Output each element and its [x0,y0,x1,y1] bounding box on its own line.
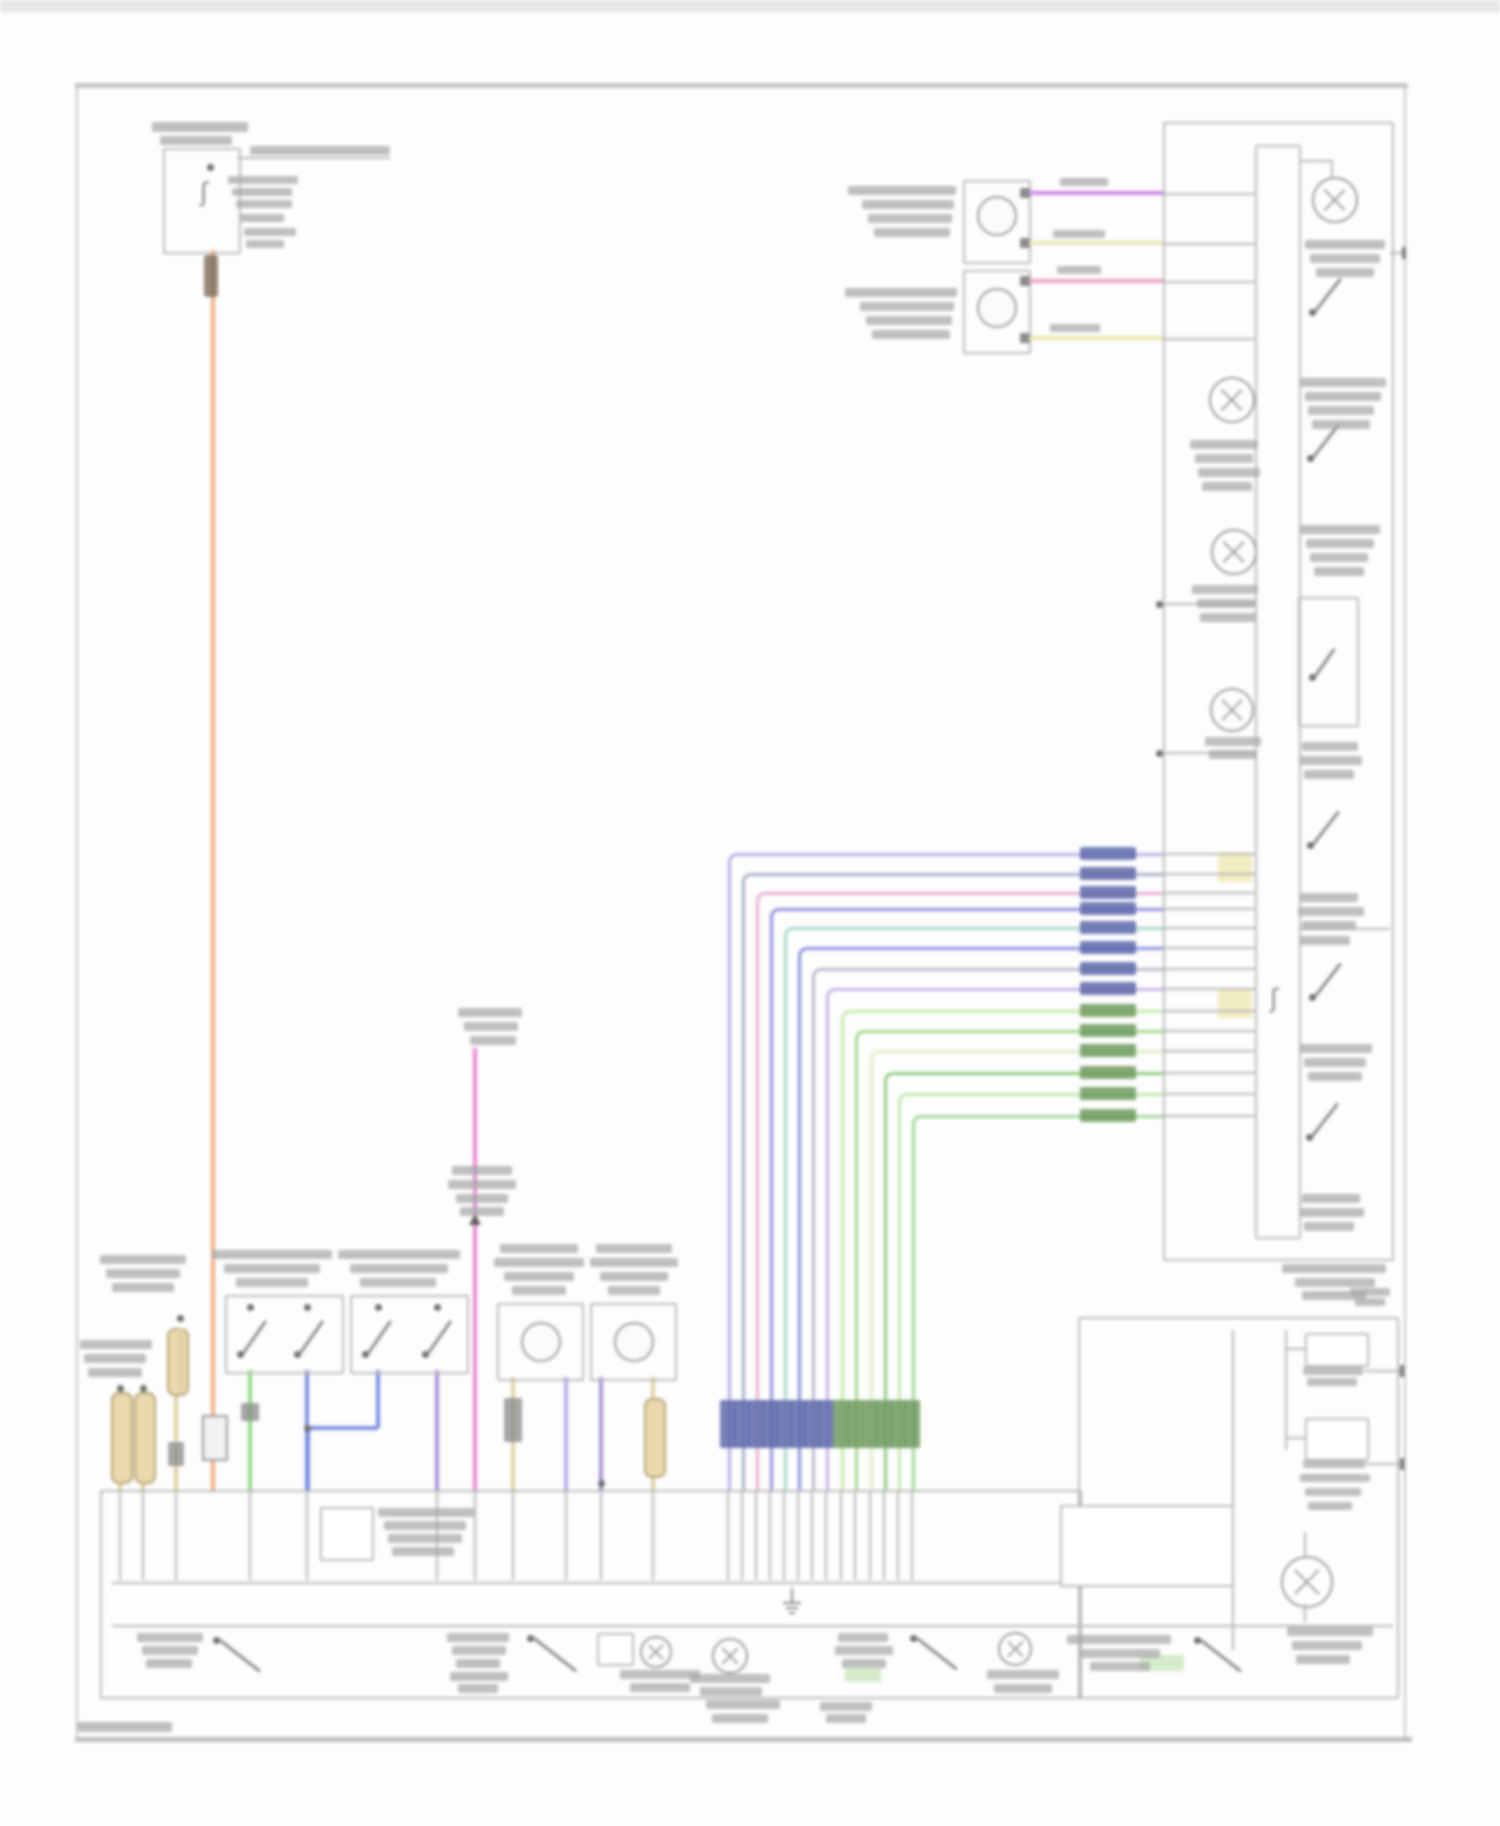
illegible-label [1292,1641,1362,1650]
illegible-label [1307,1378,1357,1386]
illegible-label [1300,936,1350,945]
drop-wire [599,1377,603,1490]
blue-wire [376,1370,380,1428]
illegible-label [1090,1662,1150,1671]
illegible-label [1304,1058,1366,1067]
drop-wire [564,1377,568,1490]
illegible-label [78,1722,172,1732]
offpage-tick [1400,1458,1404,1470]
illegible-label [500,1244,578,1253]
bundle-wire-label [818,1400,834,1448]
bundle-wire-label [847,1400,863,1448]
illegible-label [1303,1460,1365,1468]
ground-symbol-icon [789,1612,795,1614]
offpage-tick [1400,1365,1404,1377]
bus-stub-line [512,1490,514,1580]
illegible-label [1355,1298,1385,1306]
wire-label-block [241,1403,259,1421]
drop-wire [473,1048,477,1490]
diagram-canvas: ʃʃ [0,0,1500,1826]
terminal-dot [140,1385,147,1392]
indicator-lamp-icon [1209,377,1255,423]
tap-dot [1156,601,1163,608]
illegible-label [1308,1502,1352,1510]
terminal-dot [598,1480,605,1487]
internal-line [1163,1030,1255,1032]
internal-line [1163,1115,1255,1117]
illegible-label [448,1180,516,1189]
illegible-label [1308,406,1374,415]
pale-wire-label [1218,852,1252,882]
indicator-lamp-icon [1211,529,1257,575]
illegible-label [456,1659,500,1668]
motor-icon [614,1322,654,1362]
internal-line [1163,281,1255,283]
illegible-label [872,330,950,339]
illegible-label [1303,1367,1363,1375]
illegible-label [232,188,292,196]
illegible-label [504,1272,574,1281]
illegible-label [1302,1194,1360,1203]
illegible-label [1296,1655,1350,1664]
illegible-label [1314,567,1364,576]
frame-bottom-border [75,1737,1412,1742]
illegible-label [1350,1288,1390,1296]
motor-icon [977,288,1017,328]
pin-dot [247,1304,254,1311]
blue-link-wire [307,1426,378,1430]
wire-coil-icon: ʃ [1270,986,1279,1012]
illegible-label [1197,599,1255,608]
illegible-label [1300,1474,1370,1482]
bundle-wire-label [1080,1066,1136,1079]
main-module-box [100,1490,1082,1699]
illegible-label [712,1714,768,1723]
internal-line [1163,947,1255,949]
pale-wire-label [1218,990,1252,1018]
illegible-label [100,1255,186,1264]
wire-connector-block [202,1415,228,1461]
illegible-label [1053,230,1105,238]
frame-right-border [1404,83,1406,1742]
bus-stub-line [306,1490,308,1580]
indicator-lamp-icon [640,1636,672,1668]
terminal-dot [117,1385,124,1392]
bus-stub-line [600,1490,602,1580]
fuse-capsule-icon [167,1328,189,1396]
bundle-wire-label [1080,867,1136,880]
illegible-label [250,146,390,155]
motor-wire [1029,241,1163,245]
illegible-label [1195,454,1253,463]
illegible-label [460,1207,504,1216]
lamp-lead-line [1304,1604,1306,1622]
illegible-label [820,1702,872,1711]
illegible-label [1304,770,1354,779]
khaki-wire [179,1328,183,1390]
illegible-label [845,288,957,297]
illegible-label [1316,268,1374,277]
illegible-label [1300,378,1386,387]
illegible-label [1202,482,1252,491]
illegible-label [1198,468,1260,477]
bundle-wire-label [1080,1024,1136,1037]
illegible-label [706,1700,780,1709]
internal-line [1163,873,1255,875]
illegible-label [1192,585,1258,594]
illegible-label [456,1194,508,1203]
illegible-label [826,1714,866,1723]
illegible-label [142,1646,198,1655]
lamp-lead-line [1304,1532,1306,1556]
bus-stub-line [652,1490,654,1580]
illegible-label [392,1547,454,1556]
internal-line [1163,1050,1255,1052]
illegible-label [1200,613,1256,622]
illegible-label [1302,742,1358,751]
illegible-label [388,1534,462,1543]
illegible-label [228,176,298,184]
illegible-label [146,1659,192,1668]
illegible-label [224,1264,320,1273]
illegible-label [137,1633,203,1642]
illegible-label [512,1286,566,1295]
illegible-label [1190,440,1258,449]
indicator-lamp-icon [1210,688,1254,732]
orange-feed-wire [211,250,215,1490]
illegible-label [88,1368,142,1377]
illegible-label [1300,1044,1372,1053]
illegible-label [246,240,284,248]
blue-wire [305,1370,309,1428]
bus-stub-line [474,1490,476,1580]
illegible-label [350,1264,448,1273]
motor-icon [977,196,1017,236]
illegible-label [630,1683,690,1692]
illegible-label [458,1008,522,1017]
page-top-strip [0,0,1500,12]
indicator-lamp-icon [1312,177,1358,223]
internal-line [1163,988,1255,990]
bus-stub-line [565,1490,567,1580]
illegible-label [1306,539,1374,548]
motor-wire [1029,336,1163,340]
bundle-wire-label [1080,1044,1136,1057]
illegible-label [452,1166,512,1175]
bundle-wire-label [1080,1087,1136,1100]
ground-symbol-icon [791,1588,793,1602]
illegible-label [338,1250,460,1259]
illegible-label [1205,737,1261,746]
illegible-label [470,1036,516,1045]
motor-wire [1029,279,1163,283]
motor-icon [521,1322,561,1362]
illegible-label [1287,1627,1373,1636]
illegible-label [152,122,248,132]
illegible-label [994,1684,1052,1693]
offpage-stub-line [1365,1370,1402,1372]
switch-box [225,1295,344,1374]
illegible-label [987,1670,1059,1679]
lamp-feed-line [1299,160,1333,162]
illegible-label [244,228,296,236]
illegible-label [236,1278,308,1287]
illegible-label [1295,1278,1375,1287]
fuse-element-icon: ʃ [200,180,209,206]
fuse-terminal-dot [207,164,214,171]
illegible-label [596,1244,672,1253]
bundle-wire-label [904,1400,920,1448]
bundle-wire-label [1080,941,1136,954]
illegible-label [1300,525,1380,534]
internal-line [1285,1348,1305,1350]
illegible-label [868,214,952,223]
internal-line [1163,193,1255,195]
offpage-tick [1402,247,1406,259]
switch-box [350,1295,469,1374]
wire-label-block [168,1442,184,1466]
illegible-label [447,1633,509,1642]
component-sub-box [1305,1418,1369,1461]
illegible-label [842,1659,886,1668]
bus-stub-line [142,1490,144,1580]
module-sub-box [320,1507,374,1561]
illegible-label [608,1286,660,1295]
illegible-label [1300,756,1362,765]
bundle-wire-label [1080,962,1136,975]
illegible-label [838,1633,888,1642]
frame-left-border [76,83,78,1742]
illegible-label [1282,1264,1386,1273]
illegible-label [450,1672,508,1681]
illegible-label [1305,240,1385,249]
illegible-label [700,1687,762,1696]
illegible-label [1298,907,1364,916]
blue-wire [306,1428,310,1490]
illegible-label [80,1340,152,1349]
illegible-label [464,1022,518,1031]
illegible-label [1209,750,1257,759]
illegible-label [378,1508,474,1517]
illegible-label [384,1521,466,1530]
illegible-label [236,200,292,208]
module-inner-line [112,1582,1060,1584]
internal-line [1163,892,1255,894]
internal-line [1163,338,1255,340]
illegible-label [1305,392,1381,401]
bundle-wire-label [1080,902,1136,915]
illegible-label [1080,1649,1160,1658]
illegible-label [620,1670,700,1679]
bundle-wire-label [1080,886,1136,899]
relay-sub-box [597,1633,634,1666]
internal-line [1163,927,1255,929]
drop-wire [248,1370,252,1490]
illegible-label [452,1646,506,1655]
illegible-label [1308,1072,1362,1081]
illegible-label [160,136,232,145]
pin-dot [304,1304,311,1311]
pin-dot [434,1304,441,1311]
wire-label-block [504,1398,522,1442]
indicator-lamp-icon [1281,1556,1333,1608]
illegible-label [1304,1222,1354,1231]
illegible-label [848,186,956,195]
module-inner-line [112,1625,1393,1627]
illegible-label [862,200,954,209]
pale-wire-label [845,1668,881,1682]
illegible-label [1302,921,1356,930]
illegible-label [1300,1208,1364,1217]
internal-line [1285,1437,1305,1439]
illegible-label [1310,553,1368,562]
illegible-label [874,228,950,237]
terminal-dot [177,1315,184,1322]
illegible-label [112,1283,174,1292]
fuse-capsule-icon [111,1392,133,1484]
internal-line [1163,908,1255,910]
bus-stub-line [119,1490,121,1580]
bundle-wire-label [1080,1109,1136,1122]
illegible-label [1067,1635,1171,1644]
right-inner-connector-strip [1255,145,1301,1239]
component-sub-box [1305,1333,1369,1367]
illegible-label [1312,420,1370,429]
illegible-label [212,1250,332,1259]
illegible-label [458,1684,498,1693]
drop-wire [174,1392,178,1490]
illegible-label [860,302,954,311]
fuse-capsule-icon [134,1392,156,1484]
offpage-stub-line [1365,1463,1402,1465]
ground-symbol-icon [786,1607,798,1609]
bundle-wire-label [1080,982,1136,995]
illegible-label [1310,254,1380,263]
indicator-lamp-icon [998,1632,1032,1666]
illegible-label [1060,178,1108,186]
motor-wire [1029,191,1163,195]
illegible-label [1305,1488,1361,1496]
bundle-wire-label [1080,921,1136,934]
tap-dot [1156,750,1163,757]
illegible-label [1050,324,1100,332]
internal-line [1163,968,1255,970]
bus-stub-line [249,1490,251,1580]
illegible-label [84,1354,146,1363]
internal-line [1163,243,1255,245]
fuse-capsule-icon [644,1398,666,1478]
bus-stub-line [175,1490,177,1580]
fuse-stub-line [237,157,390,159]
wiring-diagram-page: ʃʃ [0,0,1500,1826]
illegible-label [1057,266,1101,274]
inner-bus-line [1232,1330,1234,1650]
illegible-label [690,1674,770,1683]
pin-dot [375,1304,382,1311]
internal-line [1163,1093,1255,1095]
fuse-dark-segment [204,255,218,297]
illegible-label [106,1269,180,1278]
ground-symbol-icon [783,1602,801,1604]
illegible-label [866,316,952,325]
illegible-label [835,1646,893,1655]
switch-sub-box [1298,597,1359,727]
illegible-label [590,1258,678,1267]
bundle-wire-label [1080,1004,1136,1017]
module-sub-box [1060,1505,1234,1587]
junction-dot [304,1425,311,1432]
frame-top-border [75,83,1408,88]
internal-line [1163,1072,1255,1074]
bundle-wire-label [1080,847,1136,860]
illegible-label [360,1278,436,1287]
drop-wire [435,1370,439,1490]
illegible-label [240,214,284,222]
illegible-label [1300,893,1358,902]
illegible-label [600,1272,668,1281]
illegible-label [494,1258,584,1267]
internal-line [1163,1010,1255,1012]
indicator-lamp-icon [712,1638,748,1674]
internal-line [1163,853,1255,855]
